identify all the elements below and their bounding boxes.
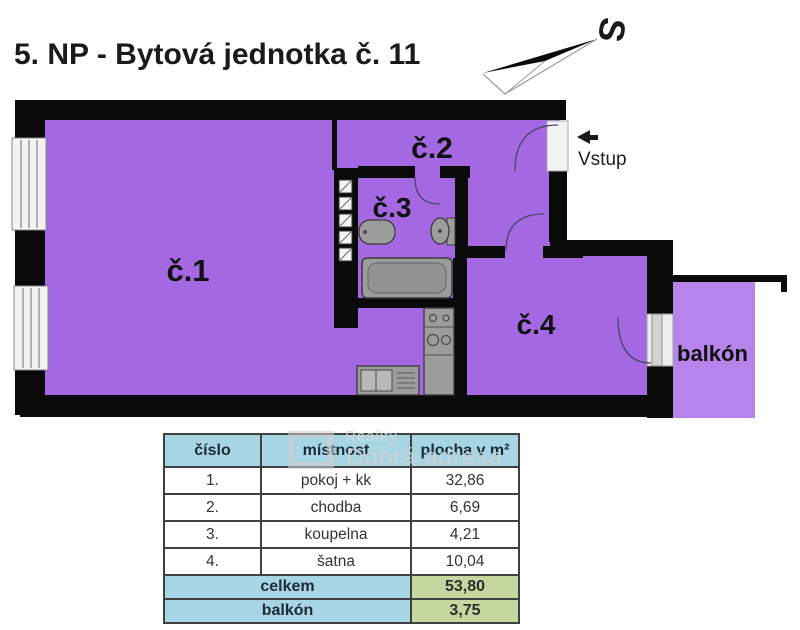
header-area: plocha v m² (411, 434, 519, 467)
cell-number: 2. (164, 494, 261, 521)
cell-number: 4. (164, 548, 261, 575)
entrance-annotation: Vstup (577, 130, 627, 170)
entrance-opening (547, 121, 568, 171)
balcony-label: balkón (677, 341, 748, 366)
cell-number: 3. (164, 521, 261, 548)
balcony-door (647, 314, 673, 366)
table-row: 2. chodba 6,69 (164, 494, 519, 521)
room4-floor (560, 250, 650, 398)
header-room: místnost (261, 434, 411, 467)
north-compass: S (470, 0, 670, 100)
toilet (431, 218, 455, 245)
shaft-hatch (339, 180, 352, 261)
north-label: S (590, 15, 635, 46)
balcony-railing-end (781, 275, 787, 292)
cell-room: chodba (261, 494, 411, 521)
cell-room: pokoj + kk (261, 467, 411, 494)
cell-room: koupelna (261, 521, 411, 548)
balcony-row: balkón 3,75 (164, 599, 519, 623)
header-number: číslo (164, 434, 261, 467)
window-2 (14, 286, 48, 370)
table-row: 1. pokoj + kk 32,86 (164, 467, 519, 494)
bathtub (362, 258, 452, 298)
total-value: 53,80 (411, 575, 519, 599)
floor-plan: č.1 č.2 č.3 č.4 balkón Vstup (0, 88, 800, 430)
cell-area: 10,04 (411, 548, 519, 575)
cell-area: 32,86 (411, 467, 519, 494)
balcony-row-label: balkón (164, 599, 411, 623)
table-row: 4. šatna 10,04 (164, 548, 519, 575)
page-title: 5. NP - Bytová jednotka č. 11 (14, 38, 420, 72)
room2-label: č.2 (411, 132, 453, 165)
window-1 (12, 138, 46, 230)
north-arrow-outline (483, 39, 597, 94)
kitchen-sink-unit (357, 366, 419, 395)
total-row: celkem 53,80 (164, 575, 519, 599)
table-header-row: číslo místnost plocha v m² (164, 434, 519, 467)
balcony-row-value: 3,75 (411, 599, 519, 623)
cell-area: 4,21 (411, 521, 519, 548)
cell-room: šatna (261, 548, 411, 575)
kitchen-counter (424, 308, 454, 395)
sink (359, 220, 395, 244)
room4-label: č.4 (517, 309, 556, 340)
cell-area: 6,69 (411, 494, 519, 521)
table-row: 3. koupelna 4,21 (164, 521, 519, 548)
room3-label: č.3 (373, 192, 412, 223)
room1-label: č.1 (166, 253, 209, 288)
cell-number: 1. (164, 467, 261, 494)
total-label: celkem (164, 575, 411, 599)
floor-plan-page: { "title": "5. NP - Bytová jednotka č. 1… (0, 0, 800, 630)
entrance-label: Vstup (578, 149, 627, 170)
north-arrow-icon (483, 39, 597, 73)
area-table: číslo místnost plocha v m² 1. pokoj + kk… (163, 433, 520, 624)
